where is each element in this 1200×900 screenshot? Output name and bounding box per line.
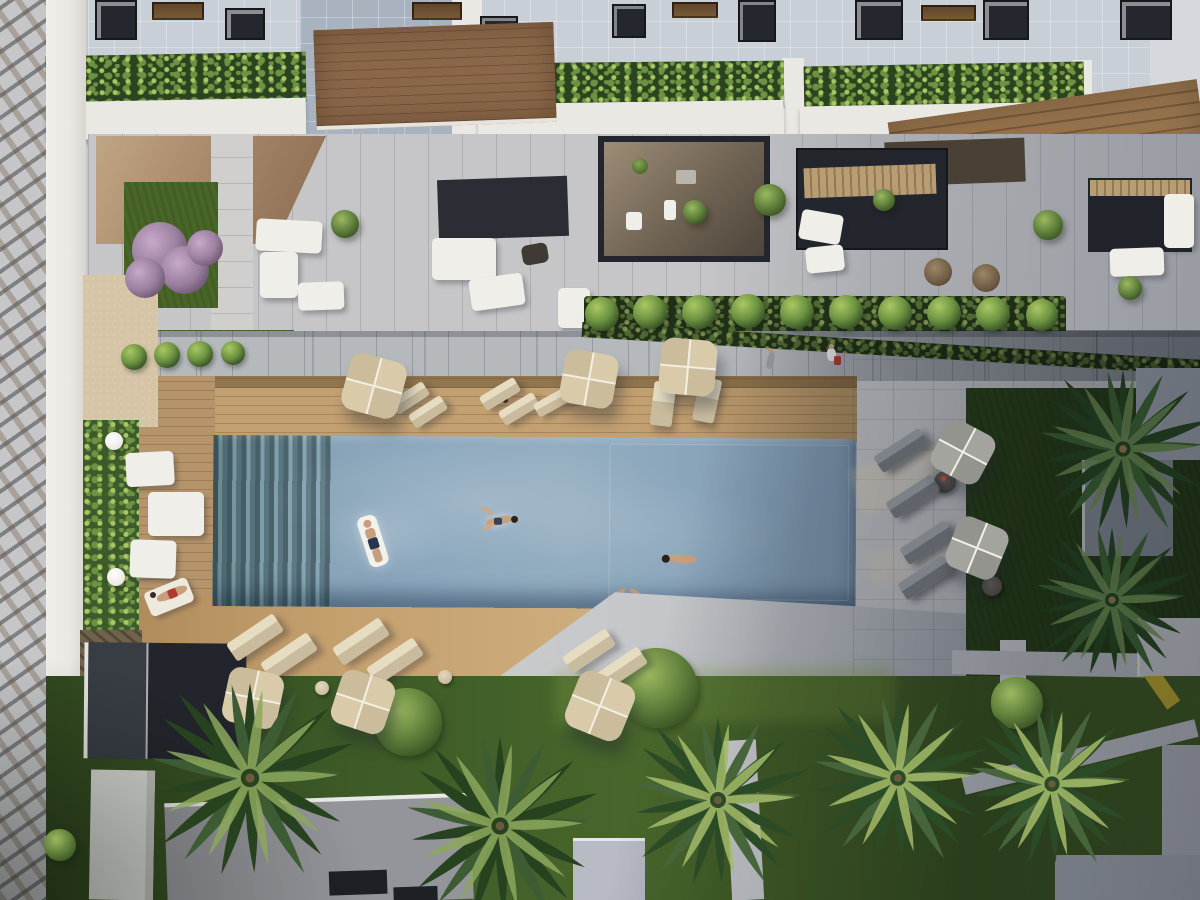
table-item-red (941, 476, 946, 481)
hedge-bush (878, 296, 912, 330)
hedge-bush (121, 344, 147, 370)
hedge-bush (154, 342, 180, 368)
side-table (438, 670, 452, 684)
pool-umbrella (558, 348, 621, 411)
aerial-render-scene (0, 0, 1200, 900)
tree-bush (754, 184, 786, 216)
tree-bush (1118, 276, 1142, 300)
hedge-bush (682, 295, 716, 329)
hedge-bush (633, 295, 667, 329)
hedge-bush (731, 294, 765, 328)
palm-tree (618, 700, 818, 900)
pool-umbrella (658, 337, 719, 398)
hedge-bush (221, 341, 245, 365)
side-table (105, 432, 123, 450)
side-table (107, 568, 125, 586)
palm-tree (1024, 512, 1200, 688)
palm-tree (957, 689, 1147, 879)
sun-lounger (897, 554, 953, 599)
hedge-bush (1026, 299, 1058, 331)
side-table (924, 258, 952, 286)
hedge-bush (780, 295, 814, 329)
hedge-bush (585, 297, 619, 331)
tree-bush (873, 189, 895, 211)
vegetation-and-furniture-layer (0, 0, 1200, 900)
sun-lounger (885, 473, 941, 518)
tree-bush (1033, 210, 1063, 240)
purple-bush (187, 230, 223, 266)
sun-lounger (873, 427, 929, 472)
tree-bush (683, 200, 707, 224)
hedge-bush (829, 295, 863, 329)
palm-tree (135, 663, 365, 893)
side-table (972, 264, 1000, 292)
palm-tree (392, 718, 608, 900)
tree-bush (44, 829, 76, 861)
hedge-bush (976, 297, 1010, 331)
tree-bush (331, 210, 359, 238)
pool-umbrella (942, 513, 1012, 583)
purple-bush (125, 258, 165, 298)
hedge-bush (187, 341, 213, 367)
hedge-bush (927, 296, 961, 330)
